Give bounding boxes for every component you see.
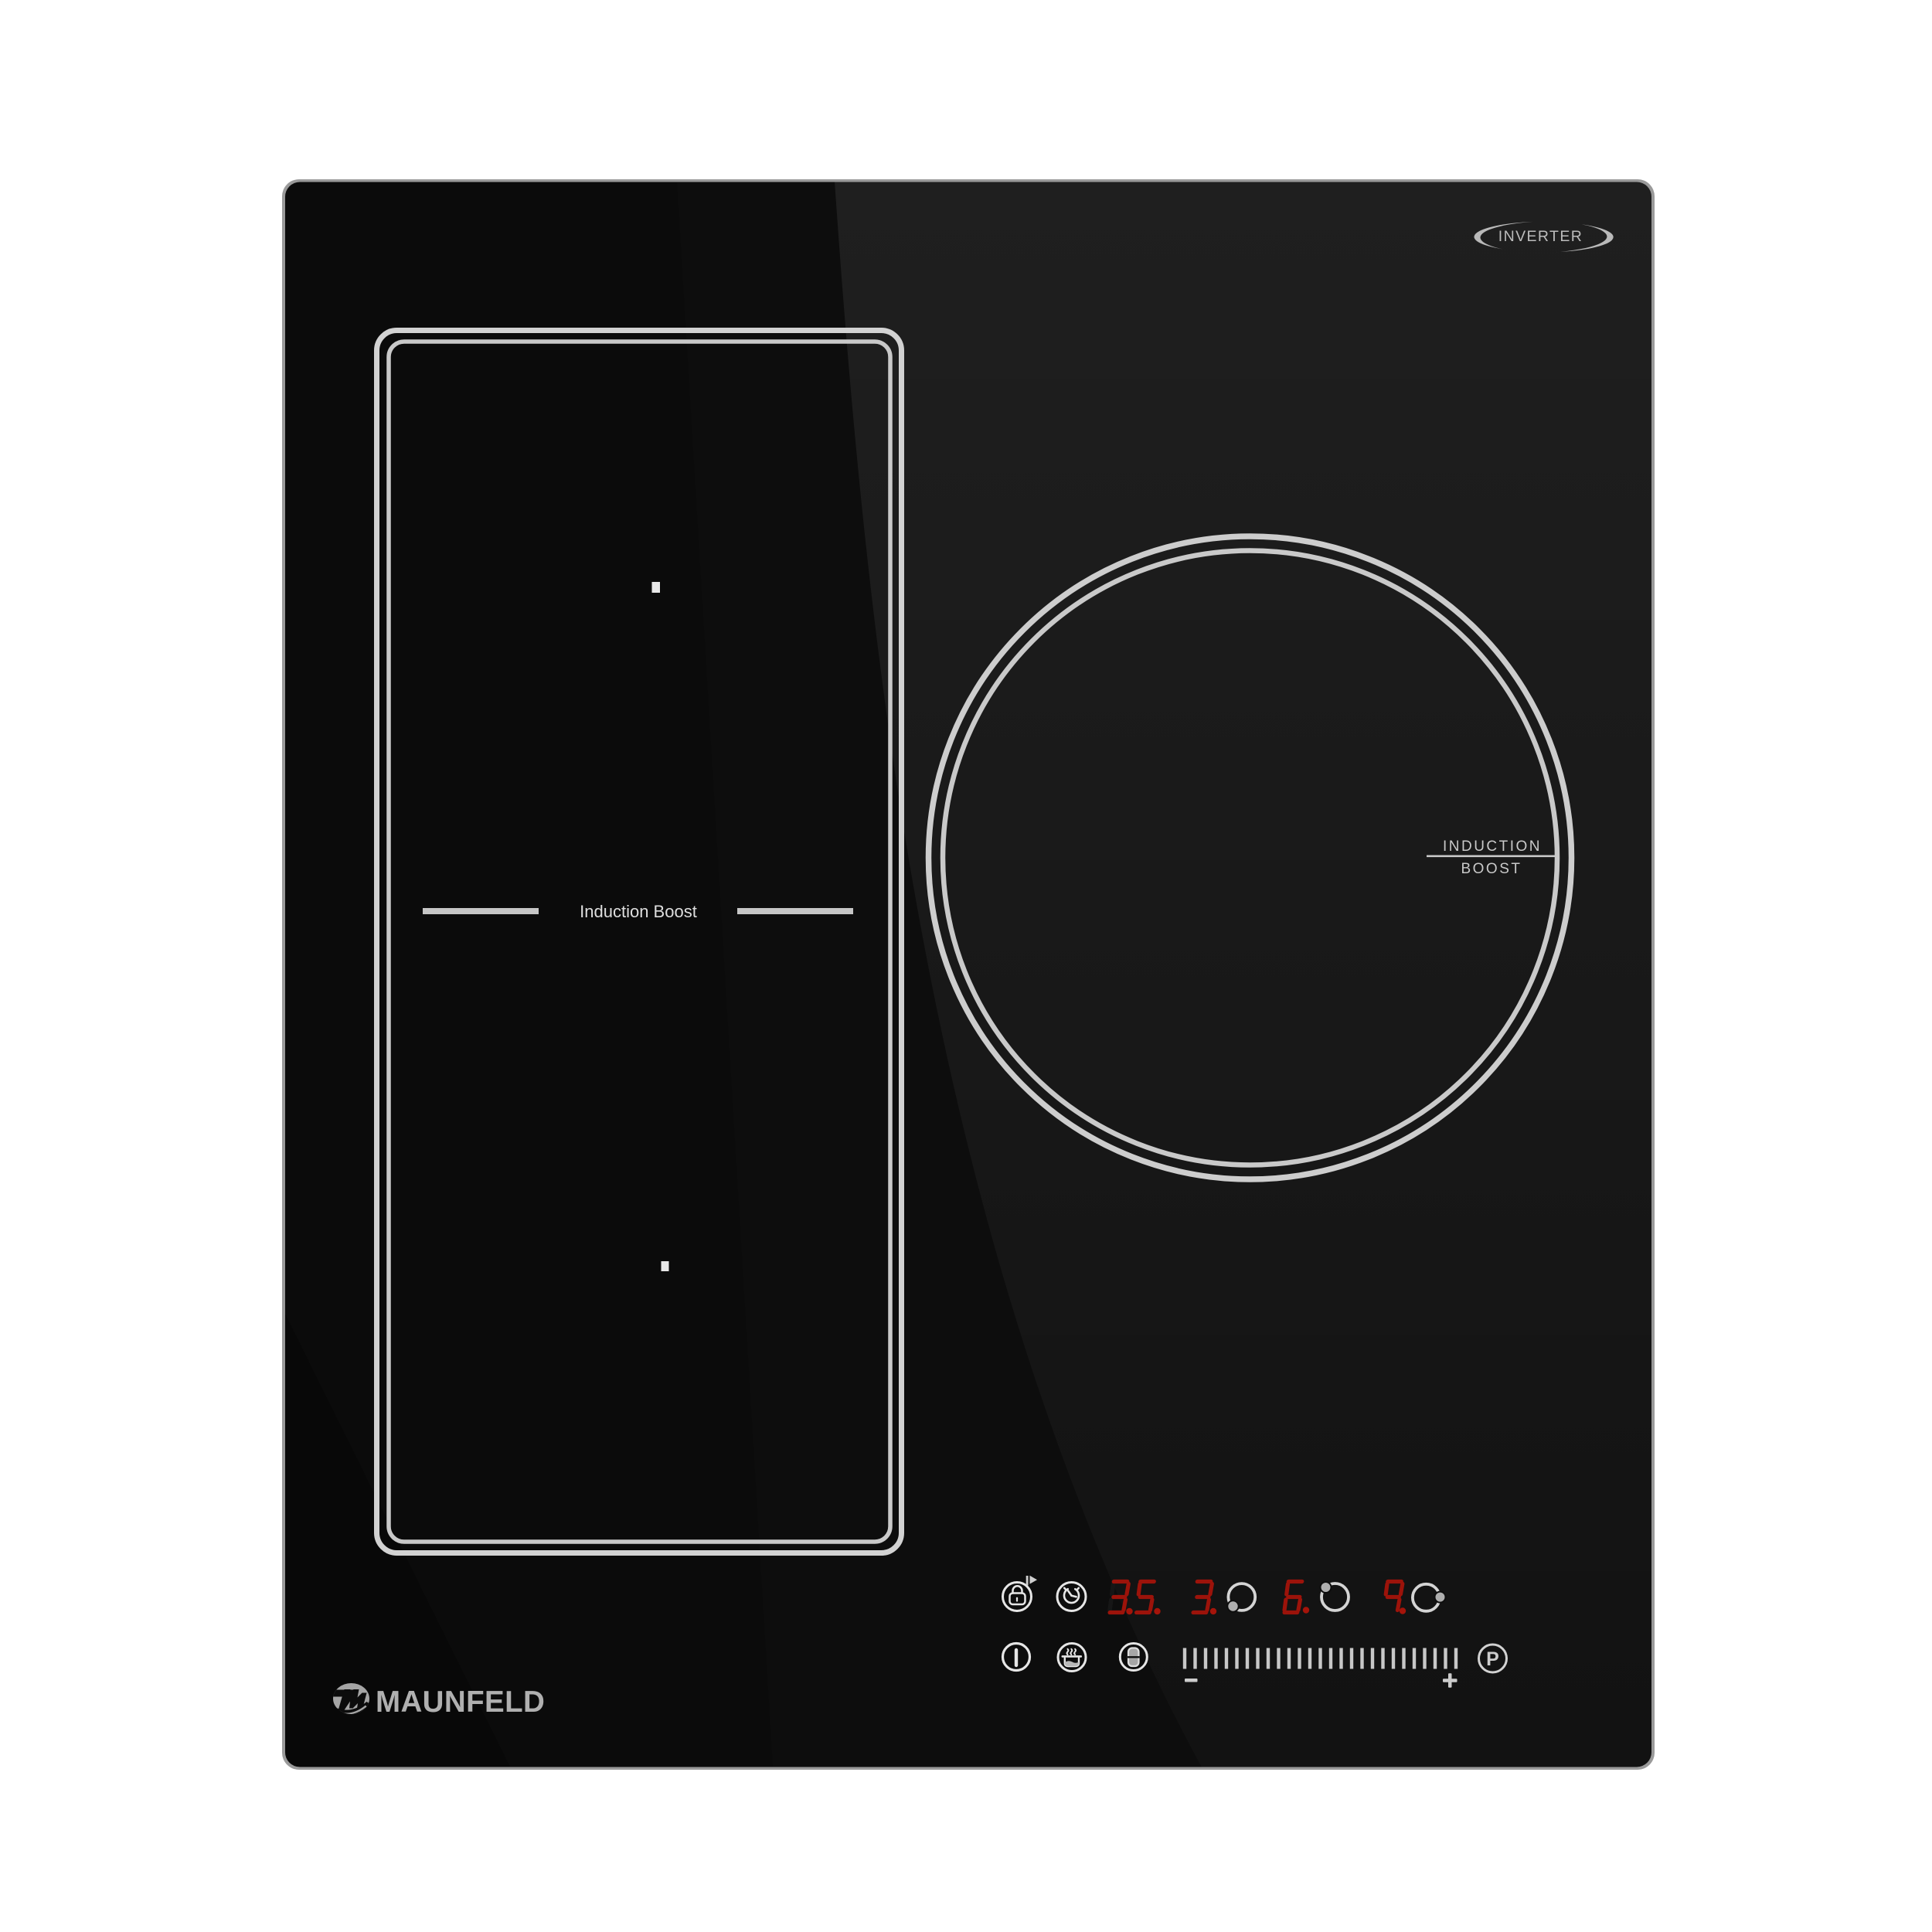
- svg-text:P: P: [1486, 1648, 1499, 1670]
- svg-text:INVERTER: INVERTER: [1498, 228, 1583, 245]
- svg-text:INDUCTION: INDUCTION: [1443, 838, 1542, 855]
- svg-text:Induction Boost: Induction Boost: [580, 902, 697, 921]
- svg-text:MAUNFELD: MAUNFELD: [376, 1685, 545, 1719]
- svg-text:BOOST: BOOST: [1461, 861, 1522, 877]
